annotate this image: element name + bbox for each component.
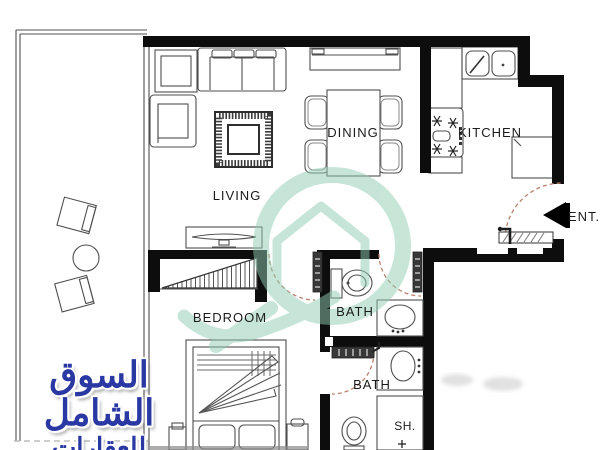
room-label-bedroom: BEDROOM	[193, 310, 267, 325]
nightstand	[287, 419, 308, 450]
room-label-dining: DINING	[327, 125, 379, 140]
side-table	[155, 50, 197, 92]
balcony-chair	[57, 197, 96, 234]
dining-chair	[378, 140, 402, 173]
brand-line1: السوق الشامل	[6, 356, 192, 432]
dining-chair	[378, 96, 402, 129]
room-label-bath-bottom: BATH	[353, 377, 391, 392]
room-label-entrance: ENT.	[568, 209, 600, 224]
armchair	[150, 95, 196, 147]
room-label-kitchen: KITCHEN	[458, 125, 522, 140]
bedroom-wardrobe	[160, 258, 258, 289]
coffee-table-rug	[215, 112, 272, 167]
refrigerator	[512, 137, 553, 178]
dining-chair	[305, 96, 329, 129]
bed	[186, 340, 286, 450]
entrance-arrow-icon	[543, 202, 570, 228]
brand-line2: للعقارات	[6, 434, 192, 450]
tv-shelf	[186, 227, 262, 248]
dining-console	[310, 48, 400, 70]
ghost-smudges	[441, 374, 523, 391]
sofa	[198, 48, 286, 91]
floor-plan: LIVING DINING KITCHEN BEDROOM BATH BATH …	[0, 0, 600, 450]
brand-text: السوق الشامل للعقارات	[6, 356, 192, 450]
kitchen-sink	[462, 47, 518, 79]
kitchen-counter	[429, 48, 462, 173]
room-label-bath-top: BATH	[336, 304, 374, 319]
balcony-chair	[55, 275, 94, 312]
room-label-shower: SH.	[394, 419, 416, 433]
room-label-living: LIVING	[213, 188, 262, 203]
balcony-table	[73, 245, 99, 271]
toilet	[342, 417, 366, 450]
